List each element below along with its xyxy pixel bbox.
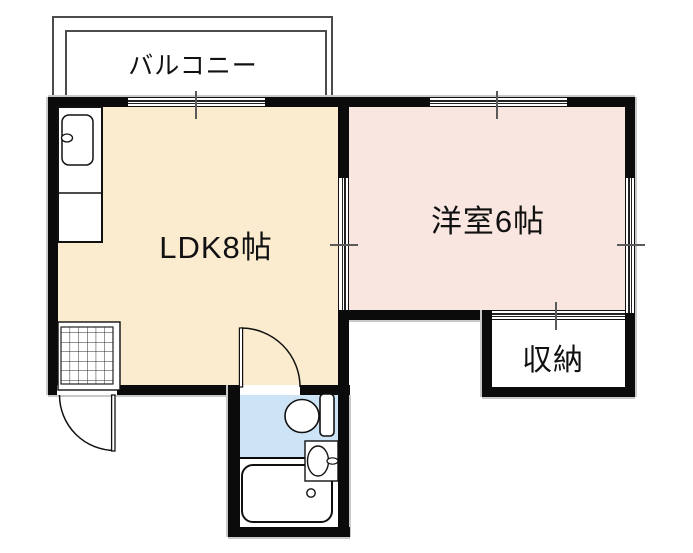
kitchen-sink-fixture [58, 107, 102, 242]
washbasin-fixture [305, 441, 338, 481]
fixtures-layer [0, 0, 693, 553]
floor-plan: バルコニー LDK8帖 洋室6帖 収納 [0, 0, 693, 553]
tick-ldk-window [195, 91, 197, 119]
tick-western-right-window [617, 244, 645, 246]
ldk-label: LDK8帖 [116, 222, 316, 267]
western-room-label: 洋室6帖 [388, 196, 588, 241]
tick-partition [330, 244, 358, 246]
storage-label: 収納 [493, 335, 613, 379]
entrance-tile [58, 322, 120, 390]
tick-western-top-window [496, 91, 498, 119]
entrance-door [60, 395, 116, 451]
tick-storage-door [555, 302, 557, 330]
toilet-fixture [285, 394, 334, 436]
bathroom-door [239, 328, 300, 387]
balcony-label: バルコニー [93, 46, 293, 82]
